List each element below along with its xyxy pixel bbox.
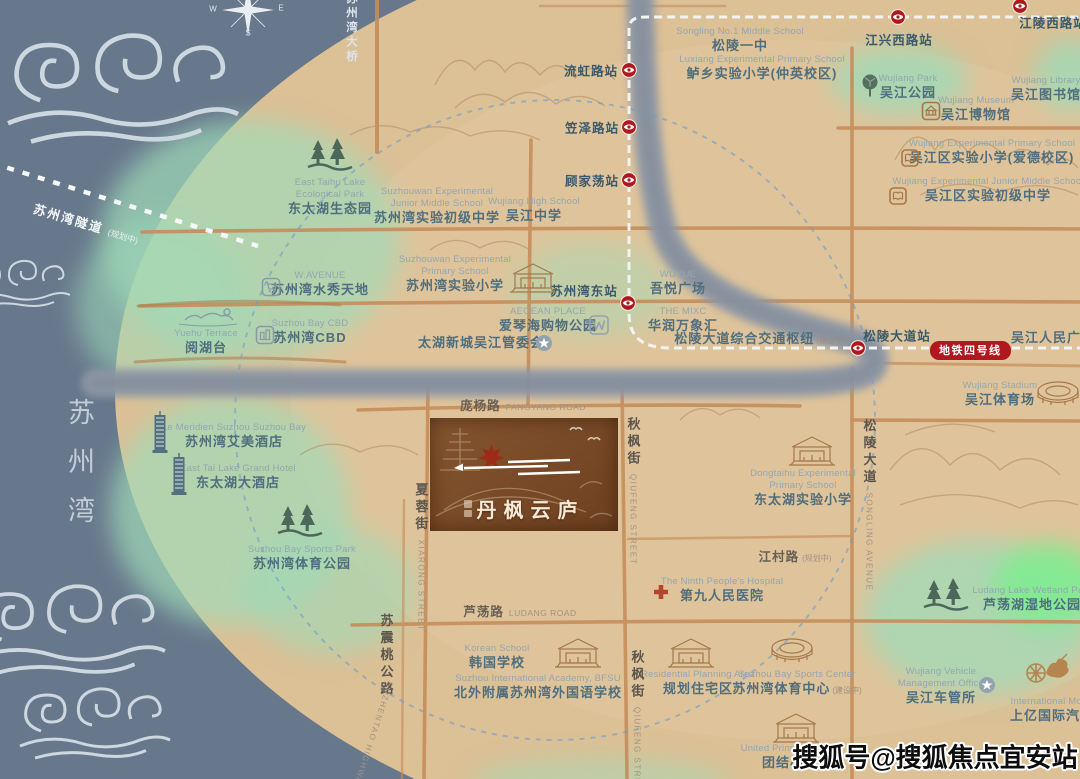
w-avenue: W.AVENUE苏州湾水秀天地 — [271, 270, 369, 298]
suzhou-bay-cbd: Suzhou Bay CBD苏州湾CBD — [272, 318, 349, 346]
street-xiarong: 夏蓉街XIARONG STREET — [412, 483, 431, 632]
label-layer: 流虹路站笠泽路站顾家荡站苏州湾东站松陵大道站江兴西路站江陵西路站Songling… — [0, 0, 1080, 779]
school-sketch-icon — [786, 433, 838, 467]
suzhou-bay-sports-center: Suzhou Bay Sports Center苏州湾体育中心(建设中) — [732, 669, 861, 697]
wuyue-plaza: WUYUE吾悦广场 — [650, 269, 706, 297]
school-sketch-icon — [552, 635, 604, 669]
wujiang-museum: Wujiang Museum吴江博物馆 — [938, 95, 1014, 123]
pines-icon — [922, 578, 970, 612]
east-taihu-ecological-park: East Taihu LakeEcological Park东太湖生态园 — [288, 177, 372, 217]
stadium-sketch-icon — [769, 635, 815, 665]
station-jiangxing-west: 江兴西路站 — [865, 30, 933, 49]
book-icon — [901, 149, 919, 167]
cross-icon — [654, 585, 669, 600]
metro-station-icon — [890, 9, 906, 25]
tower-icon — [170, 453, 188, 497]
compass-letter-w: W — [209, 5, 217, 14]
wujiang-library: Wujiang Library吴江图书馆 — [1011, 75, 1080, 103]
wujiang-experimental-junior-middle-school: Wujiang Experimental Junior Middle Schoo… — [892, 176, 1080, 204]
yuehu-terrace: Yuehu Terrace阅湖台 — [174, 328, 238, 356]
suzhouwan-experimental-primary-school: Suzhouwan ExperimentalPrimary School苏州湾实… — [399, 254, 511, 294]
shangyi-international-motor-city: International Motor上亿国际汽车 — [1010, 696, 1080, 724]
avenue-songling: 松陵大道SONGLING AVENUE — [860, 419, 879, 592]
horse-sketch-icon — [1022, 650, 1072, 686]
wujiang-vehicle-management-office: Wujiang VehicleManagement Office吴江车管所 — [898, 666, 984, 706]
metro-station-icon — [621, 119, 637, 135]
compass-letter-e: E — [278, 4, 283, 13]
metro-line-4-badge: 地铁四号线 — [930, 341, 1011, 360]
station-songling-avenue: 松陵大道站 — [863, 326, 931, 345]
book-icon — [889, 187, 907, 205]
lake-name: 苏州湾 — [60, 398, 99, 545]
wujiang-experimental-primary-school: Wujiang Experimental Primary School吴江区实验… — [909, 138, 1075, 166]
metro-station-icon — [620, 295, 636, 311]
bridge-streaks — [464, 460, 580, 474]
compass-letter-s: S — [245, 29, 250, 38]
wujiang-park: Wujiang Park吴江公园 — [879, 73, 938, 101]
road-ludang: 芦荡路LUDANG ROAD — [463, 601, 576, 621]
ludang-lake-wetland-park: Ludang Lake Wetland Park芦荡湖湿地公园 — [972, 585, 1080, 613]
suzhou-international-academy-bfsu: Suzhou International Academy, BFSU北外附属苏州… — [454, 673, 622, 701]
star-circle-icon — [979, 677, 996, 694]
stadium-sketch-icon — [1035, 378, 1080, 408]
cbd-icon — [256, 326, 275, 345]
road-jiangcun: 江村路(规划中) — [759, 546, 832, 566]
le-meridien-suzhou-bay-hotel: Le Meridien Suzhou Suzhou Bay苏州湾艾美酒店 — [162, 422, 306, 450]
songling-no1-middle-school: Songling No.1 Middle School松陵一中 — [676, 26, 803, 54]
wujiang-peoples-square: 吴江人民广场 — [1011, 330, 1080, 346]
pines-icon — [276, 504, 324, 538]
tower-icon — [151, 411, 169, 455]
road-pangyang: 庞杨路PANGYANG ROAD — [460, 395, 586, 415]
tree-icon — [859, 74, 881, 99]
suzhouwan-experimental-junior-middle-school: Suzhouwan ExperimentalJunior Middle Scho… — [374, 186, 500, 226]
maple-leaf-icon — [479, 444, 504, 468]
east-tai-lake-grand-hotel: East Tai Lake Grand Hotel东太湖大酒店 — [180, 463, 296, 491]
property-highlight-box: 丹枫云庐 — [430, 418, 618, 531]
suzhou-bay-sports-park: Suzhou Bay Sports Park苏州湾体育公园 — [248, 544, 356, 572]
aegean-place: AEGEAN PLACE爱琴海购物公园 — [499, 306, 597, 334]
mall-w-icon — [589, 315, 609, 335]
watermark: 搜狐号@搜狐焦点宜安站 — [792, 738, 1077, 775]
luxiang-experimental-primary-school: Luxiang Experimental Primary School鲈乡实验小… — [679, 54, 844, 82]
metro-station-icon — [621, 62, 637, 78]
star-circle-icon — [536, 335, 553, 352]
station-gujiadang: 顾家荡站 — [565, 171, 619, 190]
bird-icons — [570, 428, 600, 440]
the-mixc: THE MIXC华润万象汇 — [648, 306, 718, 334]
street-qiufeng-lower: 秋枫街QIUFENG STREET — [628, 650, 647, 779]
dongtaihu-experimental-primary-school: Dongtaihu ExperimentalPrimary School东太湖实… — [750, 468, 856, 508]
museum-icon — [922, 102, 941, 121]
street-qiufeng-upper: 秋枫街QIUFENG STREET — [624, 417, 643, 565]
korean-school: Korean School韩国学校 — [465, 643, 530, 671]
highway-suzhentao-en: SUZHENTAO HIGHWAY — [346, 673, 400, 779]
ninth-peoples-hospital: The Ninth People's Hospital第九人民医院 — [661, 576, 783, 604]
wujiang-high-school: Wujiang High School吴江中学 — [488, 196, 580, 224]
station-jiangling-west: 江陵西路站 — [1019, 13, 1080, 32]
map-canvas: 流虹路站笠泽路站顾家荡站苏州湾东站松陵大道站江兴西路站江陵西路站Songling… — [0, 0, 1080, 779]
suzhou-bay-bridge-label: 苏州湾大桥 — [343, 0, 359, 65]
cart-icon — [262, 278, 281, 297]
figure-sketch-icon — [177, 305, 239, 329]
station-liuhonglu: 流虹路站 — [564, 61, 618, 80]
wujiang-stadium: Wujiang Stadium吴江体育场 — [963, 380, 1038, 408]
station-suzhouwan-east: 苏州湾东站 — [550, 281, 618, 300]
station-lizelu: 笠泽路站 — [565, 118, 619, 137]
songling-avenue-transport-hub: 松陵大道综合交通枢纽(建设中) — [674, 331, 845, 347]
metro-station-icon — [621, 172, 637, 188]
taihu-new-town-wujiang-committee: 太湖新城吴江管委会 — [418, 335, 544, 351]
school-sketch-icon — [665, 635, 717, 669]
pines-icon — [306, 138, 354, 172]
school-sketch-icon — [507, 260, 559, 294]
property-prefix-mark — [464, 500, 472, 517]
property-name: 丹枫云庐 — [477, 494, 585, 523]
